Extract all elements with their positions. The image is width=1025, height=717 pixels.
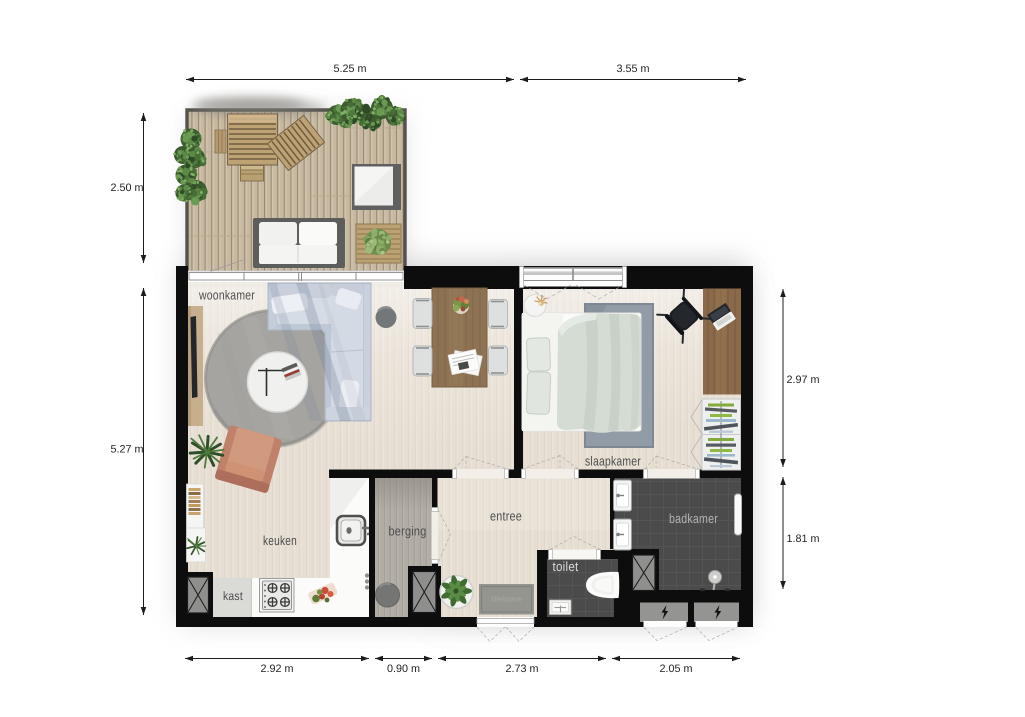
svg-text:slaapkamer: slaapkamer xyxy=(585,454,641,469)
svg-text:2.92 m: 2.92 m xyxy=(260,663,293,675)
svg-text:2.50 m: 2.50 m xyxy=(110,182,143,194)
svg-text:5.25 m: 5.25 m xyxy=(333,63,366,75)
svg-text:kast: kast xyxy=(223,589,243,603)
svg-text:berging: berging xyxy=(389,524,427,539)
svg-text:2.05 m: 2.05 m xyxy=(659,663,692,675)
svg-text:0.90 m: 0.90 m xyxy=(387,663,420,675)
svg-text:woonkamer: woonkamer xyxy=(198,288,255,303)
svg-text:3.55 m: 3.55 m xyxy=(616,63,649,75)
svg-text:toilet: toilet xyxy=(553,559,579,574)
svg-text:2.97 m: 2.97 m xyxy=(786,374,819,386)
svg-text:badkamer: badkamer xyxy=(669,511,718,526)
svg-text:2.73 m: 2.73 m xyxy=(505,663,538,675)
svg-text:5.27 m: 5.27 m xyxy=(110,444,143,456)
svg-text:Welcome: Welcome xyxy=(491,595,522,604)
svg-text:1.81 m: 1.81 m xyxy=(786,533,819,545)
svg-text:keuken: keuken xyxy=(263,533,297,548)
svg-text:entree: entree xyxy=(490,509,522,524)
